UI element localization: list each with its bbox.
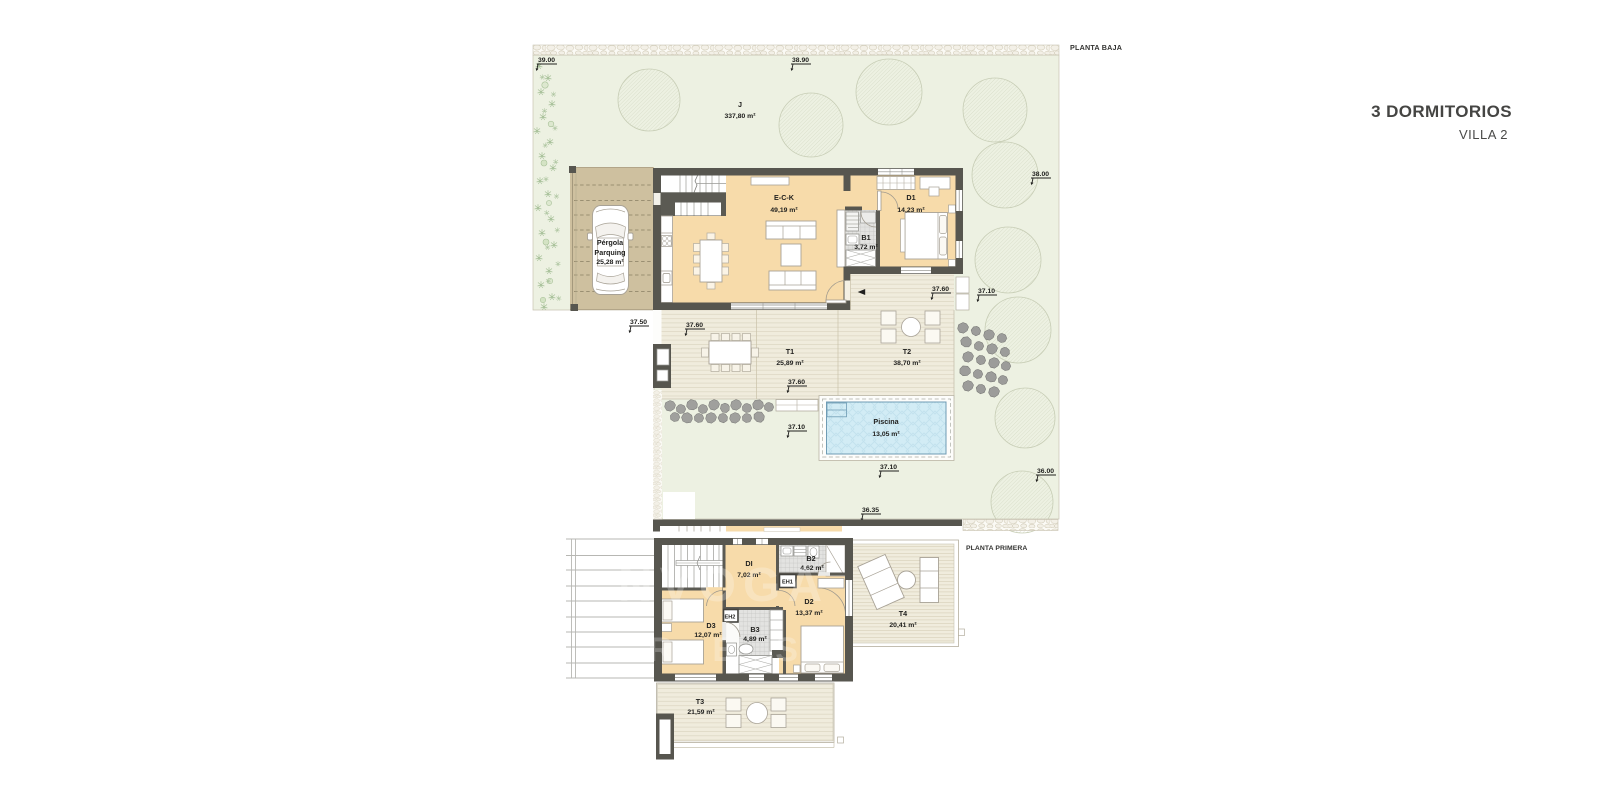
svg-text:Parquing: Parquing bbox=[594, 248, 625, 257]
svg-text:37.50: 37.50 bbox=[630, 319, 647, 326]
svg-text:20,41 m²: 20,41 m² bbox=[889, 622, 917, 629]
svg-text:J: J bbox=[738, 100, 742, 109]
svg-text:37.60: 37.60 bbox=[932, 286, 949, 293]
svg-text:T1: T1 bbox=[786, 347, 794, 356]
svg-text:T4: T4 bbox=[899, 609, 907, 618]
svg-text:13,05 m²: 13,05 m² bbox=[872, 431, 900, 438]
svg-text:B1: B1 bbox=[861, 233, 870, 242]
svg-text:39.00: 39.00 bbox=[538, 57, 555, 64]
svg-text:37.10: 37.10 bbox=[880, 464, 897, 471]
svg-text:37.10: 37.10 bbox=[788, 424, 805, 431]
svg-text:T2: T2 bbox=[903, 347, 911, 356]
svg-text:PLANTA BAJA: PLANTA BAJA bbox=[1070, 43, 1122, 52]
svg-text:NVOGA: NVOGA bbox=[618, 559, 829, 612]
svg-text:25,28 m²: 25,28 m² bbox=[596, 259, 624, 266]
svg-text:D3: D3 bbox=[706, 621, 715, 630]
svg-text:Pérgola: Pérgola bbox=[597, 238, 624, 247]
svg-text:PLANTA PRIMERA: PLANTA PRIMERA bbox=[966, 545, 1027, 552]
svg-text:3,72 m²: 3,72 m² bbox=[854, 244, 878, 251]
svg-text:38.90: 38.90 bbox=[792, 57, 809, 64]
svg-text:37.60: 37.60 bbox=[686, 322, 703, 329]
svg-text:25,89 m²: 25,89 m² bbox=[776, 360, 804, 367]
svg-text:Piscina: Piscina bbox=[873, 417, 899, 426]
svg-text:T3: T3 bbox=[696, 697, 704, 706]
svg-text:38.00: 38.00 bbox=[1032, 171, 1049, 178]
svg-text:VILLA 2: VILLA 2 bbox=[1459, 127, 1508, 142]
svg-text:RES: RES bbox=[648, 631, 838, 669]
svg-text:21,59 m²: 21,59 m² bbox=[687, 709, 715, 716]
svg-text:37.60: 37.60 bbox=[788, 379, 805, 386]
svg-text:49,19 m²: 49,19 m² bbox=[770, 207, 798, 214]
svg-text:36.35: 36.35 bbox=[862, 507, 879, 514]
svg-text:3 DORMITORIOS: 3 DORMITORIOS bbox=[1371, 102, 1512, 121]
svg-text:E-C-K: E-C-K bbox=[774, 193, 795, 202]
svg-text:37.10: 37.10 bbox=[978, 288, 995, 295]
svg-text:337,80 m²: 337,80 m² bbox=[725, 113, 757, 120]
svg-text:38,70 m²: 38,70 m² bbox=[893, 360, 921, 367]
svg-text:14,23 m²: 14,23 m² bbox=[897, 207, 925, 214]
svg-text:36.00: 36.00 bbox=[1037, 468, 1054, 475]
svg-text:EH2: EH2 bbox=[725, 615, 736, 621]
svg-text:D1: D1 bbox=[906, 193, 915, 202]
